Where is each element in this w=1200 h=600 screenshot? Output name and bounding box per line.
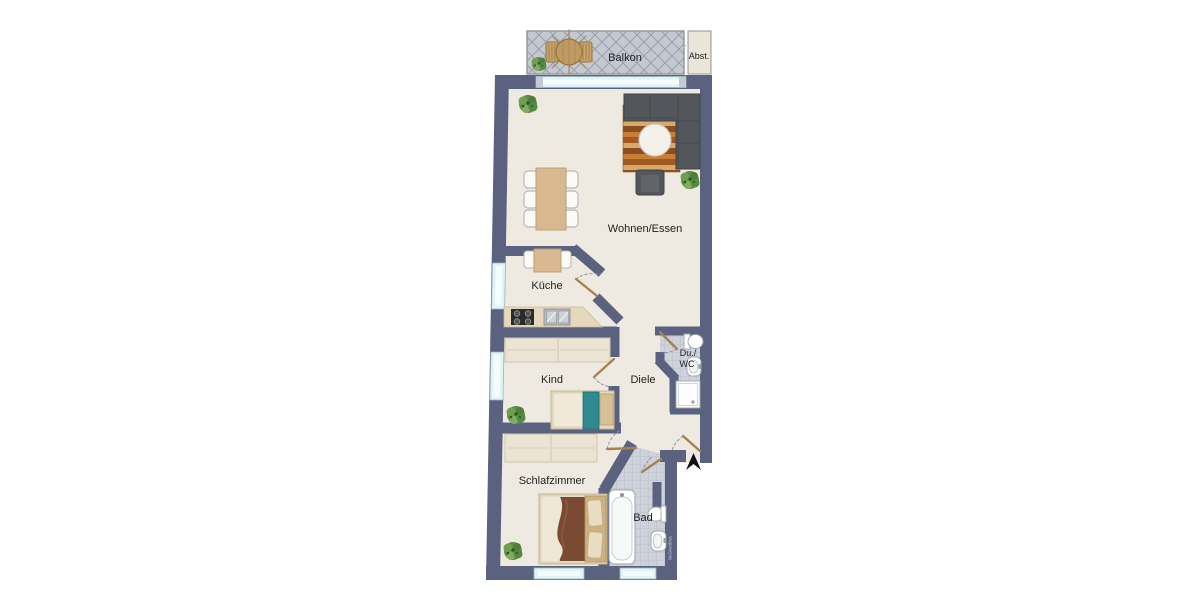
pillow-icon: [587, 532, 603, 559]
window-bad: [620, 568, 656, 579]
kind-bed-mattress: [553, 393, 584, 427]
wall-right: [700, 75, 712, 463]
kitchen-table-icon: [534, 249, 561, 272]
toilet-icon: [688, 335, 703, 349]
dining-table-icon: [536, 168, 566, 230]
shower-drain: [691, 400, 694, 403]
floorplan-svg: Balkon Abst. Wohnen/Essen Küche Kind Die…: [0, 0, 1200, 600]
label-wohnen-essen: Wohnen/Essen: [608, 223, 682, 235]
label-bad: Bad: [633, 512, 653, 524]
dining-set: [524, 168, 578, 230]
label-schlafzimmer: Schlafzimmer: [519, 475, 586, 487]
kind-nightstand-icon: [600, 394, 613, 425]
label-balkon: Balkon: [608, 52, 642, 64]
coffee-table-icon: [639, 124, 671, 156]
kitchen-chair-icon: [524, 251, 535, 268]
bathtub-faucet-icon: [620, 493, 624, 497]
floorplan-canvas: Balkon Abst. Wohnen/Essen Küche Kind Die…: [0, 0, 1200, 600]
label-kind: Kind: [541, 374, 563, 386]
pillow-icon: [587, 500, 603, 527]
window-kueche: [492, 263, 506, 309]
bathtub-inner: [612, 497, 632, 560]
label-du-wc-line2: WC: [680, 359, 695, 369]
label-abstellraum: Abst.: [689, 51, 710, 61]
toilet-tank-icon: [661, 506, 666, 522]
wall-entry-jamb: [660, 450, 686, 462]
watermark-text: McGrundriss: [668, 536, 673, 560]
label-du-wc-line1: Du./: [680, 348, 697, 358]
label-diele: Diele: [630, 374, 655, 386]
window-schlafzimmer: [534, 568, 584, 579]
label-kueche: Küche: [531, 280, 562, 292]
armchair-seat: [641, 175, 659, 192]
window-balcony: [536, 77, 686, 88]
balcony-table-set: [546, 30, 592, 74]
window-kind: [490, 352, 504, 400]
faucet-icon: [664, 538, 667, 543]
door-leaf-schlafzimmer: [607, 448, 636, 449]
kitchen-chair-icon: [560, 251, 571, 268]
kind-bed-blanket: [583, 392, 599, 429]
faucet-icon: [699, 364, 702, 369]
shower-icon: [676, 381, 700, 408]
